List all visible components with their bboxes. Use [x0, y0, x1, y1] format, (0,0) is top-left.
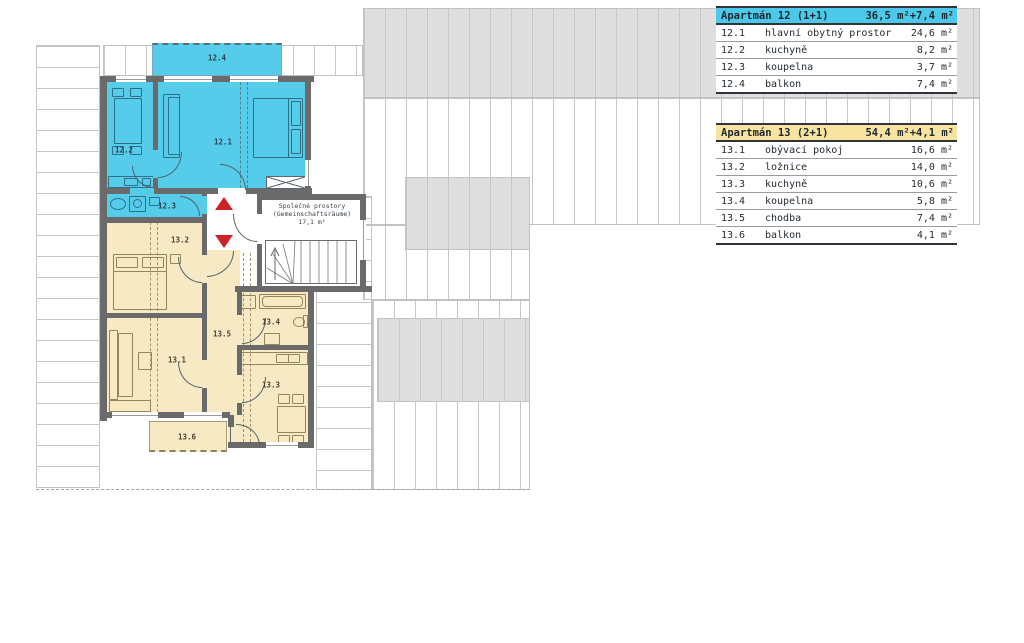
roof-eave-line — [36, 489, 530, 490]
window — [164, 76, 212, 82]
room-name: obývací pokoj — [765, 145, 911, 156]
door-opening — [130, 188, 154, 194]
legend-total-area: 36,5 m²+7,4 m² — [865, 10, 957, 22]
room-label-13-6: 13.6 — [178, 433, 196, 442]
roof-plane — [405, 177, 530, 250]
room-number: 13.5 — [716, 213, 765, 224]
room-name: balkon — [765, 230, 917, 241]
room-name: kuchyně — [765, 179, 911, 190]
apartment-13-legend-table: Apartmán 13 (2+1) 54,4 m²+4,1 m² 13.1 ob… — [716, 123, 957, 245]
room-label-12-2: 12.2 — [115, 146, 133, 155]
apartment-12-legend-header: Apartmán 12 (1+1) 36,5 m²+7,4 m² — [716, 8, 957, 25]
chair — [278, 394, 290, 404]
legend-title: Apartmán 13 (2+1) — [716, 127, 828, 139]
room-number: 13.1 — [716, 145, 765, 156]
legend-row: 13.4 koupelna 5,8 m² — [716, 193, 957, 210]
legend-row: 13.3 kuchyně 10,6 m² — [716, 176, 957, 193]
window — [112, 412, 158, 418]
room-name: chodba — [765, 213, 917, 224]
room-area: 3,7 m² — [917, 62, 957, 73]
room-label-13-2: 13.2 — [171, 236, 189, 245]
room-area: 7,4 m² — [917, 213, 957, 224]
apartment-12-legend-table: Apartmán 12 (1+1) 36,5 m²+7,4 m² 12.1 hl… — [716, 6, 957, 94]
sofa — [109, 330, 118, 400]
sofa-seat — [118, 333, 133, 397]
wall — [100, 217, 207, 223]
room-number: 12.4 — [716, 79, 765, 90]
bathroom-sink — [264, 333, 280, 345]
legend-row: 13.1 obývací pokoj 16,6 m² — [716, 142, 957, 159]
dining-table — [277, 406, 306, 433]
room-area: 16,6 m² — [911, 145, 957, 156]
chair — [130, 88, 142, 97]
common-area-label-line3: 17,1 m² — [262, 218, 362, 226]
window — [230, 76, 278, 82]
wall — [100, 313, 207, 318]
chair — [112, 88, 124, 97]
room-area: 10,6 m² — [911, 179, 957, 190]
room-area: 5,8 m² — [917, 196, 957, 207]
room-label-13-1: 13.1 — [168, 356, 186, 365]
room-name: kuchyně — [765, 45, 917, 56]
door-opening — [202, 255, 207, 283]
room-name: balkon — [765, 79, 917, 90]
coffee-table — [138, 352, 152, 370]
apartment-13-legend-header: Apartmán 13 (2+1) 54,4 m²+4,1 m² — [716, 125, 957, 142]
room-number: 12.1 — [716, 28, 765, 39]
legend-title: Apartmán 12 (1+1) — [716, 10, 828, 22]
chair — [292, 394, 304, 404]
bed-blanket-line — [113, 271, 167, 272]
door-opening — [202, 196, 207, 214]
legend-row: 13.6 balkon 4,1 m² — [716, 227, 957, 245]
room-name: koupelna — [765, 196, 917, 207]
wall — [308, 292, 314, 448]
washing-machine-drum — [133, 199, 142, 208]
roof-kneewall-line — [240, 82, 241, 188]
room-label-12-4: 12.4 — [208, 54, 226, 63]
room-number: 13.2 — [716, 162, 765, 173]
common-area-label: Společné prostory (Gemeinschaftsräume) 1… — [262, 202, 362, 226]
room-name: ložnice — [765, 162, 911, 173]
pillow — [291, 129, 301, 154]
stair-down-arrow-icon — [215, 235, 233, 248]
roof-kneewall-line — [247, 82, 248, 188]
pillow — [291, 101, 301, 126]
pillow — [116, 257, 138, 268]
legend-row: 13.5 chodba 7,4 m² — [716, 210, 957, 227]
room-name: koupelna — [765, 62, 917, 73]
room-area: 8,2 m² — [917, 45, 957, 56]
room-label-13-5: 13.5 — [213, 330, 231, 339]
roof-plane — [377, 318, 530, 402]
sofa-corner — [109, 400, 151, 412]
bathroom-sink — [110, 198, 126, 210]
room-area: 14,0 m² — [911, 162, 957, 173]
pillow — [142, 257, 164, 268]
wall — [100, 76, 107, 421]
legend-total-area: 54,4 m²+4,1 m² — [865, 127, 957, 139]
room-area: 24,6 m² — [911, 28, 957, 39]
wall — [235, 286, 372, 292]
stair-up-arrow-icon — [215, 197, 233, 210]
legend-row: 12.1 hlavní obytný prostor 24,6 m² — [716, 25, 957, 42]
room-label-12-3: 12.3 — [158, 202, 176, 211]
balcony-door-leaf — [230, 427, 231, 442]
room-number: 13.6 — [716, 230, 765, 241]
bed-blanket-line — [288, 98, 289, 158]
room-area: 4,1 m² — [917, 230, 957, 241]
floor-plan-canvas: 12.4 12.2 12.1 12.3 13.2 13.5 13.4 13.1 … — [0, 0, 1024, 643]
window — [266, 442, 298, 448]
window — [305, 160, 311, 186]
room-area: 7,4 m² — [917, 79, 957, 90]
common-area-label-line1: Společné prostory — [262, 202, 362, 210]
room-number: 13.3 — [716, 179, 765, 190]
wall — [237, 345, 313, 350]
room-number: 13.4 — [716, 196, 765, 207]
wardrobe — [266, 176, 306, 189]
room-label-13-3: 13.3 — [262, 381, 280, 390]
legend-row: 12.2 kuchyně 8,2 m² — [716, 42, 957, 59]
legend-row: 13.2 ložnice 14,0 m² — [716, 159, 957, 176]
window — [184, 412, 222, 418]
room-label-12-1: 12.1 — [214, 138, 232, 147]
door-opening — [202, 360, 207, 388]
wall — [257, 194, 366, 200]
legend-row: 12.3 koupelna 3,7 m² — [716, 59, 957, 76]
room-number: 12.3 — [716, 62, 765, 73]
sofa-seat — [168, 97, 180, 155]
wall-opening — [360, 220, 366, 260]
room-name: hlavní obytný prostor — [765, 28, 911, 39]
legend-row: 12.4 balkon 7,4 m² — [716, 76, 957, 94]
kitchen-sink-divider — [288, 354, 289, 363]
staircase — [265, 240, 357, 284]
dining-table — [114, 98, 142, 144]
room-label-13-4: 13.4 — [262, 318, 280, 327]
window — [116, 76, 146, 82]
common-area-label-line2: (Gemeinschaftsräume) — [262, 210, 362, 218]
room-number: 12.2 — [716, 45, 765, 56]
washing-machine — [241, 295, 256, 309]
roof-plane — [36, 45, 100, 488]
bathtub-inner — [262, 296, 303, 307]
